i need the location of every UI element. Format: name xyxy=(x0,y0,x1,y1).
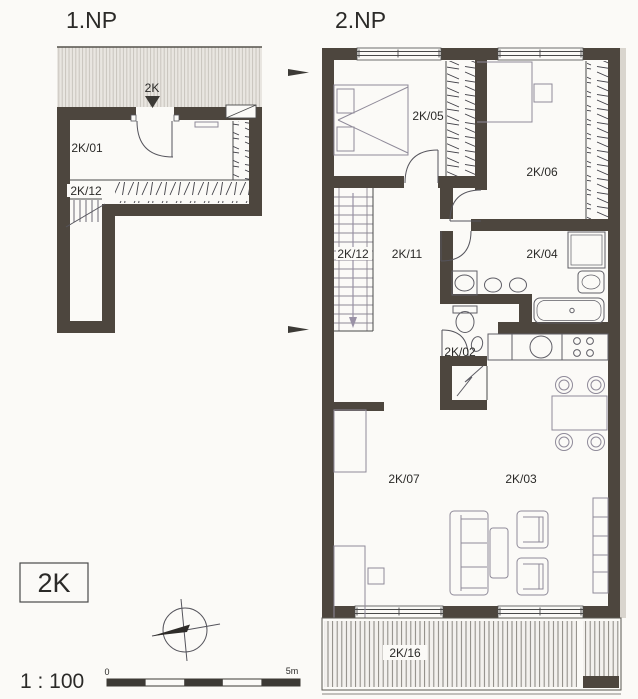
terrace-block xyxy=(583,676,619,688)
sink-right xyxy=(578,271,604,293)
washbasin-2 xyxy=(510,278,527,292)
floor2-title: 2.NP xyxy=(335,7,386,33)
shelf-unit xyxy=(593,498,608,593)
dining-table xyxy=(552,396,607,430)
double-bed xyxy=(334,85,408,155)
scale-end-label: 5m xyxy=(286,666,299,676)
dining-chairs xyxy=(556,377,605,451)
floor2-plan: 2.NP xyxy=(322,7,626,694)
room-label-2k05: 2K/05 xyxy=(412,109,444,123)
unit-label: 2K xyxy=(37,568,70,598)
kitchen-sink xyxy=(530,336,552,358)
entry-shelf xyxy=(195,122,218,127)
scale-text: 1 : 100 xyxy=(20,670,84,693)
room-label-2k12-f1: 2K/12 xyxy=(70,184,102,198)
stair-down-arrow-icon xyxy=(349,317,357,328)
shaft-closet xyxy=(457,366,487,400)
wardrobe-2k06 xyxy=(586,61,608,219)
north-arrow-icon xyxy=(152,599,220,661)
scan-shadow xyxy=(620,48,626,618)
room-label-2k03: 2K/03 xyxy=(505,472,537,486)
kitchen-counter xyxy=(488,334,608,360)
floor-plan-canvas: 1.NP 2K xyxy=(0,0,638,699)
coffee-table xyxy=(490,528,508,578)
scale-bar: 0 5m xyxy=(104,666,300,686)
room-label-2k02: 2K/02 xyxy=(444,345,476,359)
armchair-1 xyxy=(517,511,548,548)
section-arrow-bottom-icon xyxy=(288,326,309,333)
armchair-2 xyxy=(517,558,548,595)
terrace xyxy=(322,618,621,694)
legend: 2K 1 : 100 0 5m xyxy=(20,563,300,693)
toilet-bathroom xyxy=(452,271,477,295)
room-label-2k16: 2K/16 xyxy=(389,646,421,660)
bathtub xyxy=(534,298,604,323)
access-gallery-band xyxy=(57,47,262,107)
side-table xyxy=(368,568,384,584)
toilet-wc xyxy=(453,306,477,333)
cabinet-left-upper xyxy=(334,410,366,472)
washing-machine xyxy=(568,232,605,268)
floor1-title: 1.NP xyxy=(66,7,117,33)
room-label-2k04: 2K/04 xyxy=(526,247,558,261)
wardrobe-hatch-right xyxy=(233,121,249,180)
floor1-staircase xyxy=(66,199,105,227)
dining-set xyxy=(552,377,607,451)
washbasin-1 xyxy=(485,278,502,292)
entry-door xyxy=(131,115,179,157)
cooktop xyxy=(574,338,594,357)
wardrobe-hatch-bottom xyxy=(115,182,249,203)
entrance-label: 2K xyxy=(145,81,160,95)
living-furniture xyxy=(334,410,608,636)
floor1-window xyxy=(226,105,256,118)
scale-start-label: 0 xyxy=(104,667,109,677)
section-arrow-top-icon xyxy=(288,69,309,76)
room-label-2k07: 2K/07 xyxy=(388,472,420,486)
room-label-2k01: 2K/01 xyxy=(71,141,103,155)
room-label-2k11: 2K/11 xyxy=(392,247,423,261)
drawing-sheet: 1.NP 2K xyxy=(0,0,638,699)
wardrobe-2k05 xyxy=(446,61,475,176)
room-label-2k06: 2K/06 xyxy=(526,165,558,179)
floor1-plan: 1.NP 2K xyxy=(57,7,309,333)
room-label-2k12: 2K/12 xyxy=(337,247,369,261)
sofa xyxy=(450,511,488,595)
desk xyxy=(477,62,552,122)
